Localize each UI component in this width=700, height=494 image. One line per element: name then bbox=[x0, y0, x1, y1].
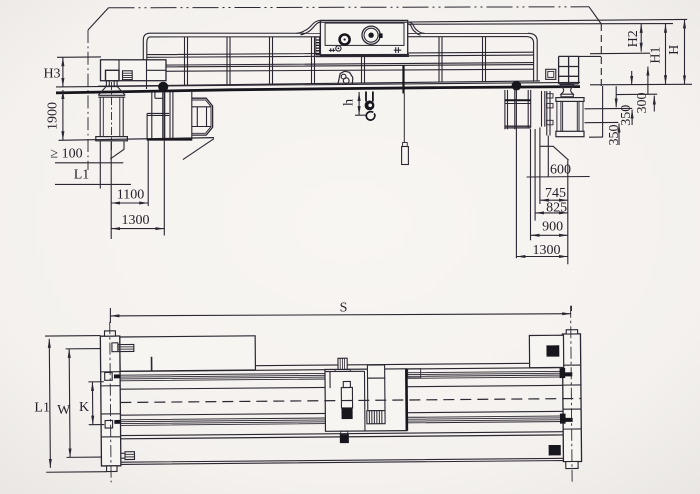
svg-text:H3: H3 bbox=[43, 67, 60, 82]
svg-text:H: H bbox=[667, 45, 682, 55]
svg-text:745: 745 bbox=[545, 186, 566, 201]
svg-text:1900: 1900 bbox=[46, 102, 61, 130]
svg-text:300: 300 bbox=[635, 93, 650, 114]
svg-text:S: S bbox=[340, 301, 348, 316]
svg-text:L1: L1 bbox=[74, 167, 90, 182]
svg-text:W: W bbox=[57, 403, 71, 418]
svg-text:K: K bbox=[79, 400, 89, 415]
svg-text:L1: L1 bbox=[34, 401, 50, 416]
svg-text:900: 900 bbox=[542, 219, 563, 234]
svg-text:1100: 1100 bbox=[117, 188, 144, 203]
svg-text:h: h bbox=[341, 99, 356, 106]
svg-text:825: 825 bbox=[546, 201, 567, 216]
svg-text:600: 600 bbox=[550, 163, 571, 178]
svg-text:≥ 100: ≥ 100 bbox=[50, 147, 82, 162]
svg-text:H2: H2 bbox=[626, 30, 641, 47]
svg-text:350: 350 bbox=[619, 105, 634, 126]
svg-text:1300: 1300 bbox=[122, 213, 150, 228]
svg-text:350: 350 bbox=[607, 125, 622, 146]
svg-text:1300: 1300 bbox=[533, 243, 561, 258]
svg-text:H1: H1 bbox=[649, 46, 664, 63]
